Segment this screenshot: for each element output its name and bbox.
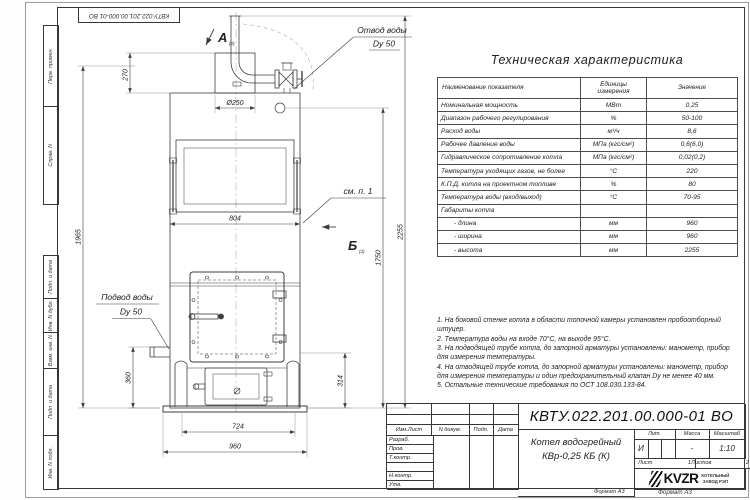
spec-param: Расход воды [438,125,581,138]
elbow-flange [233,82,241,86]
spec-value: 80 [647,178,738,191]
stamp-cell [469,435,494,490]
table-row: Температура воды (вход/выход)°С70-95 [438,191,738,204]
inspection-panel [170,140,301,214]
lit-cell [648,439,662,459]
stamp-role-utv: Утв. [387,480,434,490]
spec-value: 8,6 [647,125,738,138]
inlet-stub [150,347,170,357]
spec-param: - длина [438,217,581,230]
inlet-label-line2: Dy 50 [120,307,142,317]
spec-unit: % [581,178,647,191]
dimension-texts: 270 Ø250 804 1965 2255 1750 360 314 724 … [76,69,405,450]
technical-notes: 1. На боковой стенке котла в области топ… [437,317,740,392]
mass-value: - [675,439,710,459]
section-arc [243,24,313,90]
sheets-label: Листов [691,460,711,466]
smoke-box [215,53,255,93]
see-note-label: см. п. 1 [344,186,373,196]
fuel-door [189,272,286,362]
table-row: - длинамм960 [438,217,738,230]
logo-sub-line1: КОТЕЛЬНЫЙ [701,473,729,478]
kvzr-logo-subtitle: КОТЕЛЬНЫЙ ЗАВОД РЭП [701,473,729,484]
spec-value: 50-100 [647,112,738,125]
table-row: Расход водым³/ч8,6 [438,125,738,138]
dim-270: 270 [123,69,130,82]
spec-param: - ширина [438,230,581,243]
view-a-sub: (2) [229,41,235,46]
outlet-valve [275,63,302,93]
spec-col-header: Единицы измерения [581,78,647,99]
sheet-label: Лист [638,460,652,466]
spec-value: 0,25 [647,99,738,112]
spec-unit: м³/ч [581,125,647,138]
spec-param: Гидравлическое сопротивление котла [438,151,581,164]
dim-250: Ø250 [225,100,243,107]
lit-value: И [634,439,649,459]
dim-724: 724 [232,424,244,431]
doc-number: КВТУ.022.201.00.000-01 ВО [518,404,746,430]
dim-804: 804 [229,216,241,223]
kvzr-logo-text: KVZR [664,471,699,486]
outlet-callout: Отвод воды Dy 50 [294,25,412,89]
spec-header-row: Наименование показателя Единицы измерени… [438,78,738,99]
outlet-label-line1: Отвод воды [357,25,407,35]
dim-314: 314 [338,375,345,387]
spec-param: Габариты котла [438,204,581,217]
extension-lines [78,16,411,457]
stamp-cell [493,435,519,490]
drawing-labels: А (2) Б (2) Отвод воды Dy 50 Подвод воды… [96,25,412,349]
spec-unit [581,204,647,217]
spec-value: 960 [647,217,738,230]
spec-value: 70-95 [647,191,738,204]
dim-1965: 1965 [76,229,83,245]
table-row: Габариты котла [438,204,738,217]
note-item: 1. На боковой стенке котла в области топ… [437,317,740,335]
spec-param: Температура уходящих газов, не более [438,164,581,177]
dim-360: 360 [126,372,133,384]
dim-2255: 2255 [398,224,405,241]
spec-table: Наименование показателя Единицы измерени… [437,77,738,257]
stamp-cell [431,435,470,490]
dim-960: 960 [229,444,241,451]
spec-value: 2255 [647,244,738,257]
spec-value: 960 [647,230,738,243]
spec-unit: МПа (кгс/см²) [581,138,647,151]
spec-param: Номинальная мощность [438,99,581,112]
dimensions: 270 Ø250 804 1965 2255 1750 360 314 724 … [76,16,412,457]
format-label-left: Формат А3 [594,489,625,495]
spec-param: Диапазон рабочего регулирования [438,112,581,125]
table-row: Гидравлическое сопротивление котлаМПа (к… [438,151,738,164]
dim-1750: 1750 [376,250,383,266]
spec-unit: °С [581,191,647,204]
gauge-port [275,103,285,113]
outlet-label-line2: Dy 50 [373,39,395,49]
ash-section [175,361,299,407]
company-logo: KVZR КОТЕЛЬНЫЙ ЗАВОД РЭП [634,468,746,490]
elbow [231,62,252,83]
spec-param: Рабочее давление воды [438,138,581,151]
base-plate [163,406,307,412]
spec-table-title: Техническая характеристика [437,53,737,67]
spec-value: 0,02(0,2) [647,151,738,164]
product-name-line2: КВр-0,25 КБ (К) [542,450,610,464]
spec-col-header: Наименование показателя [438,78,581,99]
inlet-label-line1: Подвод воды [101,292,153,302]
lit-cell [661,439,676,459]
view-b-sub: (2) [359,249,365,254]
spec-value: 0,6(6,0) [647,138,738,151]
spec-param: Температура воды (вход/выход) [438,191,581,204]
title-block: Изм.Лист N докум. Подп. Дата Разраб. Про… [386,403,745,489]
scale-value: 1:10 [709,439,746,459]
spec-col-header: Значение [647,78,738,99]
spec-unit: °С [581,164,647,177]
view-a-label: А [217,30,227,45]
table-row: Диапазон рабочего регулирования%50-100 [438,112,738,125]
note-item: 4. На отводящей трубе котла, до запорной… [437,364,740,382]
table-row: - ширинамм960 [438,230,738,243]
format-label-right: Формат А3 [658,489,692,496]
ash-door-handle [195,384,205,389]
note-item: 5. Остальные технические требования по О… [437,382,740,391]
drawing-sheet: KVZR.RUKVZR.RUKVZR.RUKVZR.RUKVZR.RUKVZR.… [0,0,750,500]
note-item: 2. Температура воды на входе 70°С, на вы… [437,336,740,345]
chimney-pipe [229,16,241,62]
spec-unit: % [581,112,647,125]
product-name-line1: Котел водогрейный [531,436,621,450]
view-a-arrow [206,29,214,45]
kvzr-logo-icon [648,471,662,487]
table-row: Температура уходящих газов, не более°С22… [438,164,738,177]
see-note-callout: см. п. 1 [303,186,386,223]
spec-unit: МВт [581,99,647,112]
spec-unit: мм [581,230,647,243]
table-row: Рабочее давление водыМПа (кгс/см²)0,6(6,… [438,138,738,151]
spec-param: К.П.Д. котла на проектном топливе [438,178,581,191]
table-row: - высотамм2255 [438,244,738,257]
spec-unit: МПа (кгс/см²) [581,151,647,164]
view-b-label: Б [348,238,357,253]
sheets-value: 2 [746,460,749,466]
product-name: Котел водогрейный КВр-0,25 КБ (К) [518,429,635,497]
spec-value: 220 [647,164,738,177]
logo-sub-line2: ЗАВОД РЭП [701,479,729,484]
inlet-callout: Подвод воды Dy 50 [96,292,169,349]
outlet-pipe [252,75,275,83]
table-row: Номинальная мощностьМВт0,25 [438,99,738,112]
boiler-outline [150,12,313,415]
spec-param: - высота [438,244,581,257]
note-item: 3. На подводящей трубе котла, до запорно… [437,345,740,363]
table-row: К.П.Д. котла на проектном топливе%80 [438,178,738,191]
spec-value [647,204,738,217]
spec-unit: мм [581,217,647,230]
spec-unit: мм [581,244,647,257]
